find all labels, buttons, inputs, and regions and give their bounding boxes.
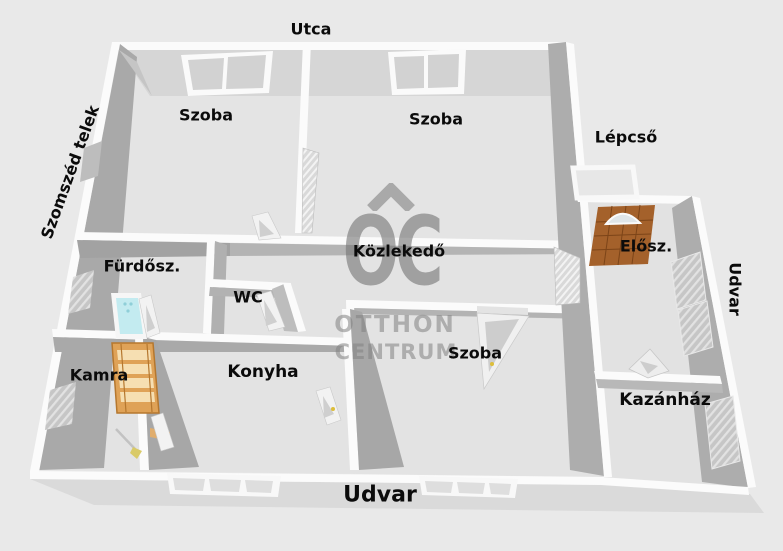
door-handle	[490, 362, 494, 366]
room-label-szoba-2: Szoba	[409, 110, 463, 129]
window-south-konyha	[167, 473, 281, 497]
north-wall	[112, 42, 566, 96]
outside-label-yard-bottom: Udvar	[343, 483, 417, 508]
room-label-eloszoba: Elősz.	[620, 237, 672, 256]
room-label-furdoszoba: Fürdősz.	[104, 257, 181, 276]
window-szoba1	[181, 51, 273, 96]
window-szoba2	[388, 49, 466, 95]
window-east-eloszoba-1	[671, 252, 706, 309]
outside-label-street: Utca	[291, 20, 332, 39]
outside-label-yard-right: Udvar	[726, 262, 745, 316]
room-label-konyha: Konyha	[227, 362, 298, 382]
floor-plan-canvas	[0, 0, 783, 551]
entry-doormat	[589, 205, 655, 266]
window-south-szoba3	[419, 476, 518, 498]
floor-plan-page: OC OTTHON CENTRUM Utca Szomszéd telek Lé…	[0, 0, 783, 551]
room-label-szoba-1: Szoba	[179, 106, 233, 125]
room-label-kozlekedo: Közlekedő	[353, 242, 445, 261]
outside-label-stairs: Lépcső	[595, 128, 658, 147]
door-handle	[331, 407, 335, 411]
window-east-eloszoba-2	[678, 301, 713, 356]
room-label-wc: WC	[233, 288, 262, 307]
room-label-kamra: Kamra	[70, 366, 129, 385]
stairs-platform	[573, 167, 637, 198]
room-label-kazanhaz: Kazánház	[619, 390, 711, 410]
room-label-szoba-3: Szoba	[448, 344, 502, 363]
